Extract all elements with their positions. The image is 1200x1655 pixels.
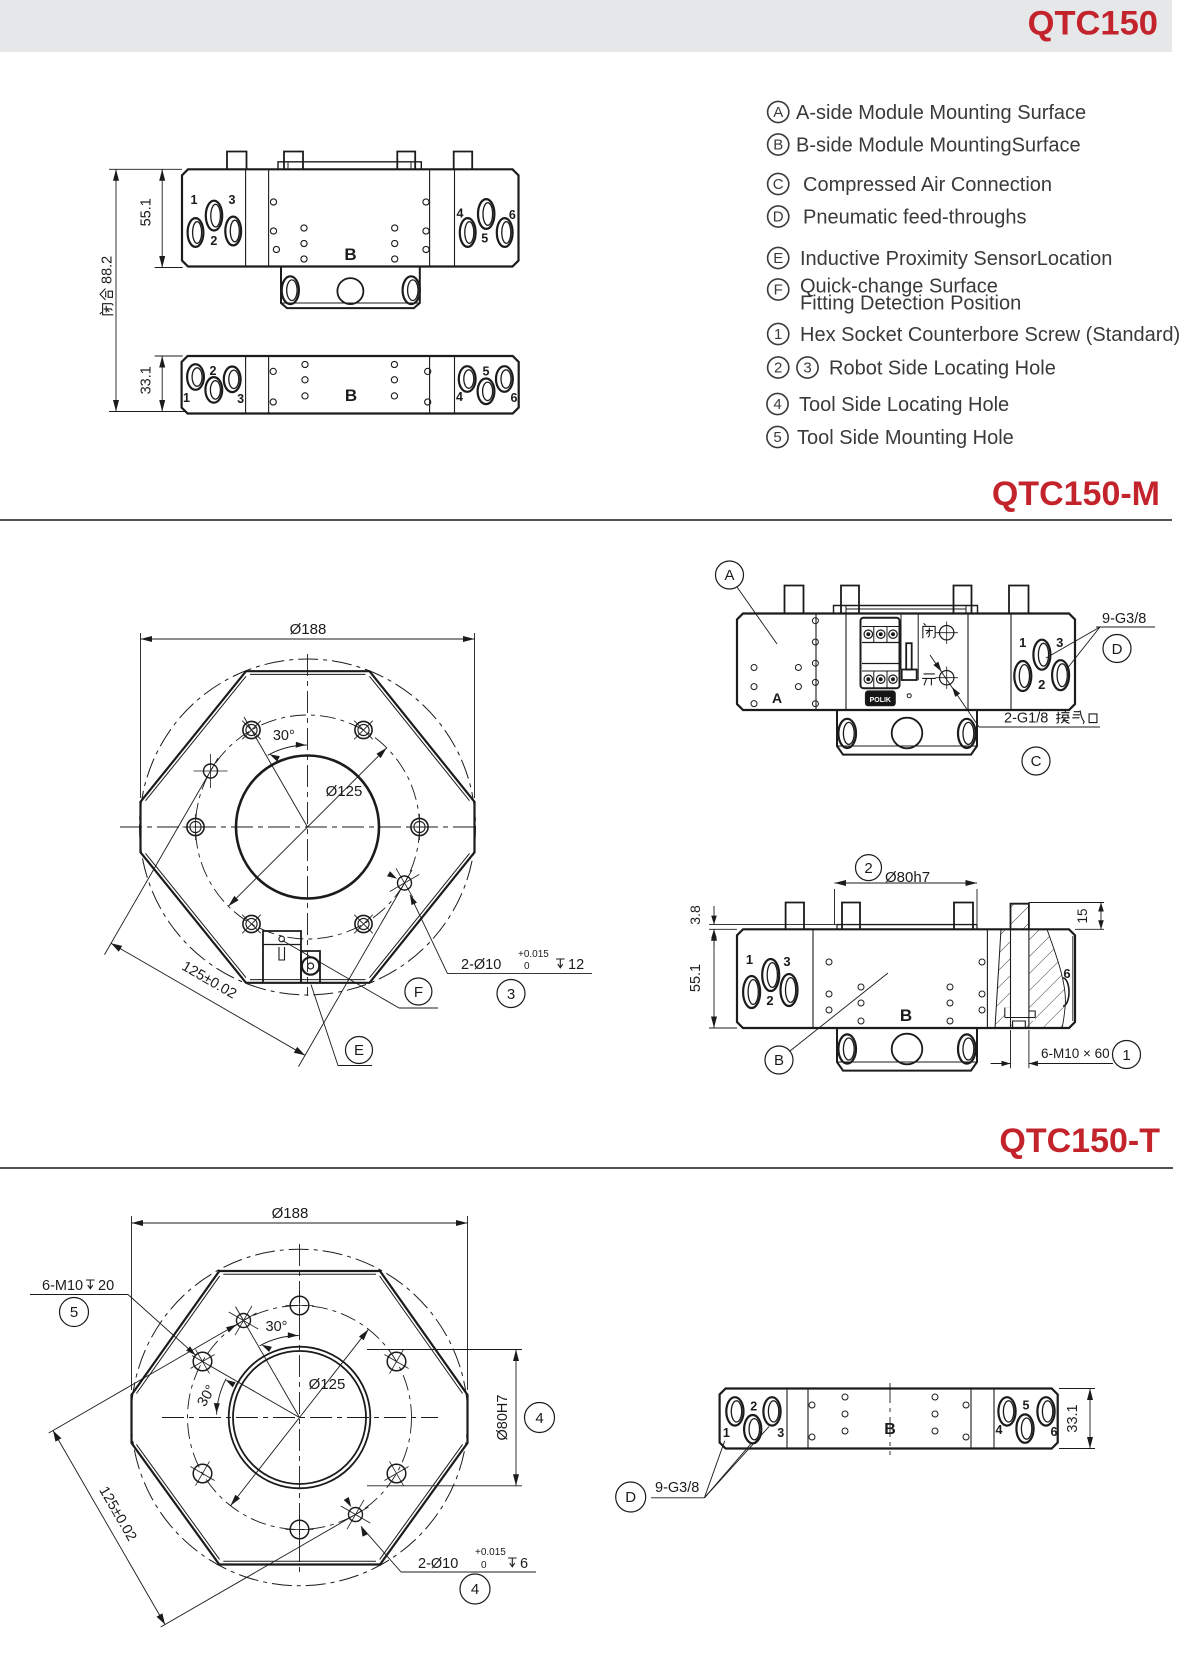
svg-text:Robot Side Locating Hole: Robot Side Locating Hole [829, 358, 1056, 380]
svg-text:3: 3 [229, 193, 236, 207]
svg-text:+0.015: +0.015 [475, 1547, 506, 1558]
svg-text:0: 0 [481, 1560, 487, 1571]
svg-text:POLIK: POLIK [870, 697, 891, 704]
svg-text:2-Ø10: 2-Ø10 [461, 957, 501, 973]
svg-text:A: A [773, 104, 783, 121]
svg-text:D: D [625, 1489, 636, 1506]
svg-text:6: 6 [520, 1556, 528, 1572]
svg-text:QTC150: QTC150 [1028, 5, 1158, 43]
svg-text:E: E [773, 250, 783, 267]
svg-text:Compressed Air Connection: Compressed Air Connection [803, 174, 1052, 196]
svg-text:30°: 30° [266, 1319, 288, 1335]
svg-text:4: 4 [471, 1581, 479, 1598]
svg-text:5: 5 [481, 232, 488, 246]
svg-text:B: B [900, 1006, 912, 1025]
svg-text:5: 5 [483, 364, 490, 378]
svg-text:2-G1/8: 2-G1/8 [1004, 711, 1048, 727]
svg-text:2: 2 [864, 860, 872, 877]
svg-text:3: 3 [777, 1426, 784, 1440]
svg-text:1: 1 [1019, 635, 1026, 650]
svg-text:9-G3/8: 9-G3/8 [655, 1480, 699, 1496]
svg-text:30°: 30° [273, 728, 295, 744]
svg-text:B-side Module MountingSurface: B-side Module MountingSurface [796, 135, 1081, 157]
svg-text:QTC150-T: QTC150-T [999, 1122, 1160, 1160]
svg-text:Pneumatic feed-throughs: Pneumatic feed-throughs [803, 207, 1026, 229]
svg-text:9-G3/8: 9-G3/8 [1102, 611, 1146, 627]
svg-text:5: 5 [1023, 1399, 1030, 1413]
svg-text:Ø80H7: Ø80H7 [495, 1395, 511, 1441]
svg-text:C: C [1031, 753, 1042, 770]
svg-text:2: 2 [210, 364, 217, 378]
svg-text:+0.015: +0.015 [518, 949, 549, 960]
svg-text:6-M10: 6-M10 [42, 1278, 83, 1294]
svg-text:D: D [1112, 641, 1123, 658]
svg-text:125±0.02: 125±0.02 [179, 959, 239, 1003]
svg-text:QTC150-M: QTC150-M [992, 475, 1160, 513]
svg-text:Ø125: Ø125 [326, 783, 363, 800]
svg-text:A-side Module Mounting Surface: A-side Module Mounting Surface [796, 102, 1086, 124]
svg-text:0: 0 [524, 961, 530, 972]
svg-text:5: 5 [773, 429, 781, 446]
svg-text:2: 2 [766, 993, 773, 1008]
svg-text:1: 1 [774, 326, 782, 343]
svg-text:2-Ø10: 2-Ø10 [418, 1556, 458, 1572]
svg-text:2: 2 [210, 234, 217, 248]
svg-text:6: 6 [1051, 1425, 1058, 1439]
svg-text:A: A [772, 690, 782, 706]
svg-text:2: 2 [774, 360, 782, 377]
svg-text:3: 3 [1056, 635, 1063, 650]
svg-text:Tool Side Locating Hole: Tool Side Locating Hole [799, 394, 1009, 416]
svg-text:4: 4 [996, 1423, 1003, 1437]
svg-text:33.1: 33.1 [138, 366, 154, 394]
svg-text:55.1: 55.1 [688, 964, 704, 992]
svg-text:B: B [773, 137, 783, 154]
svg-text:Fitting Detection Position: Fitting Detection Position [800, 293, 1021, 315]
svg-text:Tool Side Mounting Hole: Tool Side Mounting Hole [797, 427, 1014, 449]
svg-text:4: 4 [456, 390, 463, 404]
svg-text:B: B [884, 1421, 896, 1438]
svg-text:4: 4 [773, 396, 781, 413]
svg-text:Ø188: Ø188 [272, 1205, 309, 1222]
svg-text:6: 6 [511, 391, 518, 405]
svg-text:3.8: 3.8 [687, 905, 703, 925]
svg-text:12: 12 [568, 957, 584, 973]
svg-text:15: 15 [1075, 908, 1090, 923]
svg-text:B: B [345, 386, 357, 405]
svg-text:3: 3 [783, 954, 790, 969]
svg-text:Ø125: Ø125 [309, 1376, 346, 1393]
svg-text:6-M10 × 60: 6-M10 × 60 [1041, 1046, 1110, 1061]
svg-text:3: 3 [237, 392, 244, 406]
svg-text:1: 1 [1122, 1047, 1130, 1064]
svg-text:F: F [414, 984, 423, 1001]
svg-text:2: 2 [750, 1400, 757, 1414]
svg-text:Hex Socket Counterbore Screw (: Hex Socket Counterbore Screw (Standard) [800, 324, 1180, 346]
svg-text:D: D [773, 209, 784, 226]
svg-text:1: 1 [191, 193, 198, 207]
svg-text:1: 1 [723, 1426, 730, 1440]
svg-text:3: 3 [803, 360, 811, 377]
svg-text:6: 6 [509, 208, 516, 222]
svg-text:2: 2 [1038, 677, 1045, 692]
svg-text:Ø188: Ø188 [290, 621, 327, 638]
svg-text:33.1: 33.1 [1065, 1404, 1081, 1432]
svg-text:Inductive Proximity SensorLoca: Inductive Proximity SensorLocation [800, 248, 1112, 270]
svg-text:1: 1 [183, 391, 190, 405]
svg-text:4: 4 [457, 207, 464, 221]
svg-text:C: C [773, 176, 784, 193]
svg-text:125±0.02: 125±0.02 [95, 1484, 139, 1544]
svg-text:1: 1 [746, 952, 753, 967]
svg-text:5: 5 [70, 1304, 78, 1321]
svg-text:F: F [774, 282, 783, 299]
svg-text:88.2: 88.2 [100, 256, 116, 284]
svg-text:E: E [354, 1042, 364, 1059]
svg-text:B: B [344, 245, 356, 264]
svg-text:20: 20 [98, 1278, 114, 1294]
svg-text:55.1: 55.1 [138, 198, 154, 226]
svg-text:3: 3 [507, 986, 515, 1003]
svg-text:B: B [774, 1052, 784, 1069]
svg-text:A: A [724, 567, 734, 584]
svg-text:4: 4 [535, 1410, 543, 1427]
